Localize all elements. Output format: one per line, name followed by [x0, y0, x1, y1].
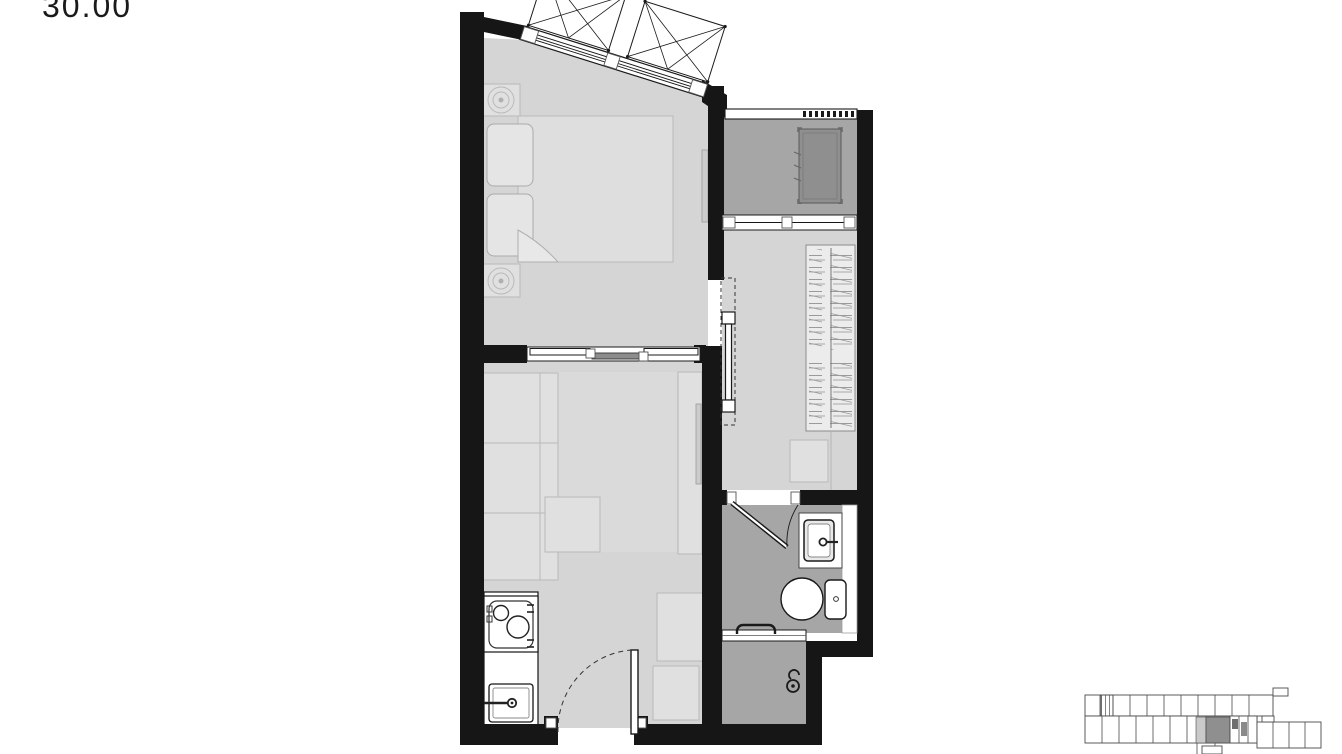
- dining-table: [657, 593, 706, 661]
- cooktop: [484, 596, 538, 652]
- shower-floor: [722, 638, 806, 724]
- ac-condenser-unit: [794, 127, 843, 204]
- bedroom-sliding-door: [527, 347, 700, 361]
- toilet-bowl: [781, 578, 823, 620]
- keyplan-highlighted-unit: [1206, 717, 1230, 743]
- toilet: [781, 578, 846, 620]
- keyplan-thumbnail: [1085, 688, 1321, 754]
- bedside-table-top: [483, 84, 520, 116]
- bedroom-wall-tv: [702, 150, 708, 222]
- balcony-sliding-window: [722, 215, 857, 230]
- balcony-railing: [725, 109, 857, 119]
- kitchen: [484, 592, 538, 728]
- coffee-table: [545, 497, 600, 552]
- wardrobe: [806, 245, 855, 431]
- floorplan-drawing: [0, 0, 1342, 754]
- keyplan-core: [1230, 716, 1257, 743]
- balcony: [794, 127, 843, 204]
- dining-chair: [653, 666, 699, 720]
- tv-console: [678, 372, 702, 554]
- kitchen-sink: [484, 684, 533, 722]
- toilet-tank: [825, 580, 846, 619]
- keyplan-stairs: [1101, 695, 1113, 716]
- pillow: [487, 124, 533, 186]
- dressing-stool: [790, 440, 828, 482]
- bathroom-sink: [799, 513, 842, 568]
- bedside-table-bottom: [483, 264, 520, 297]
